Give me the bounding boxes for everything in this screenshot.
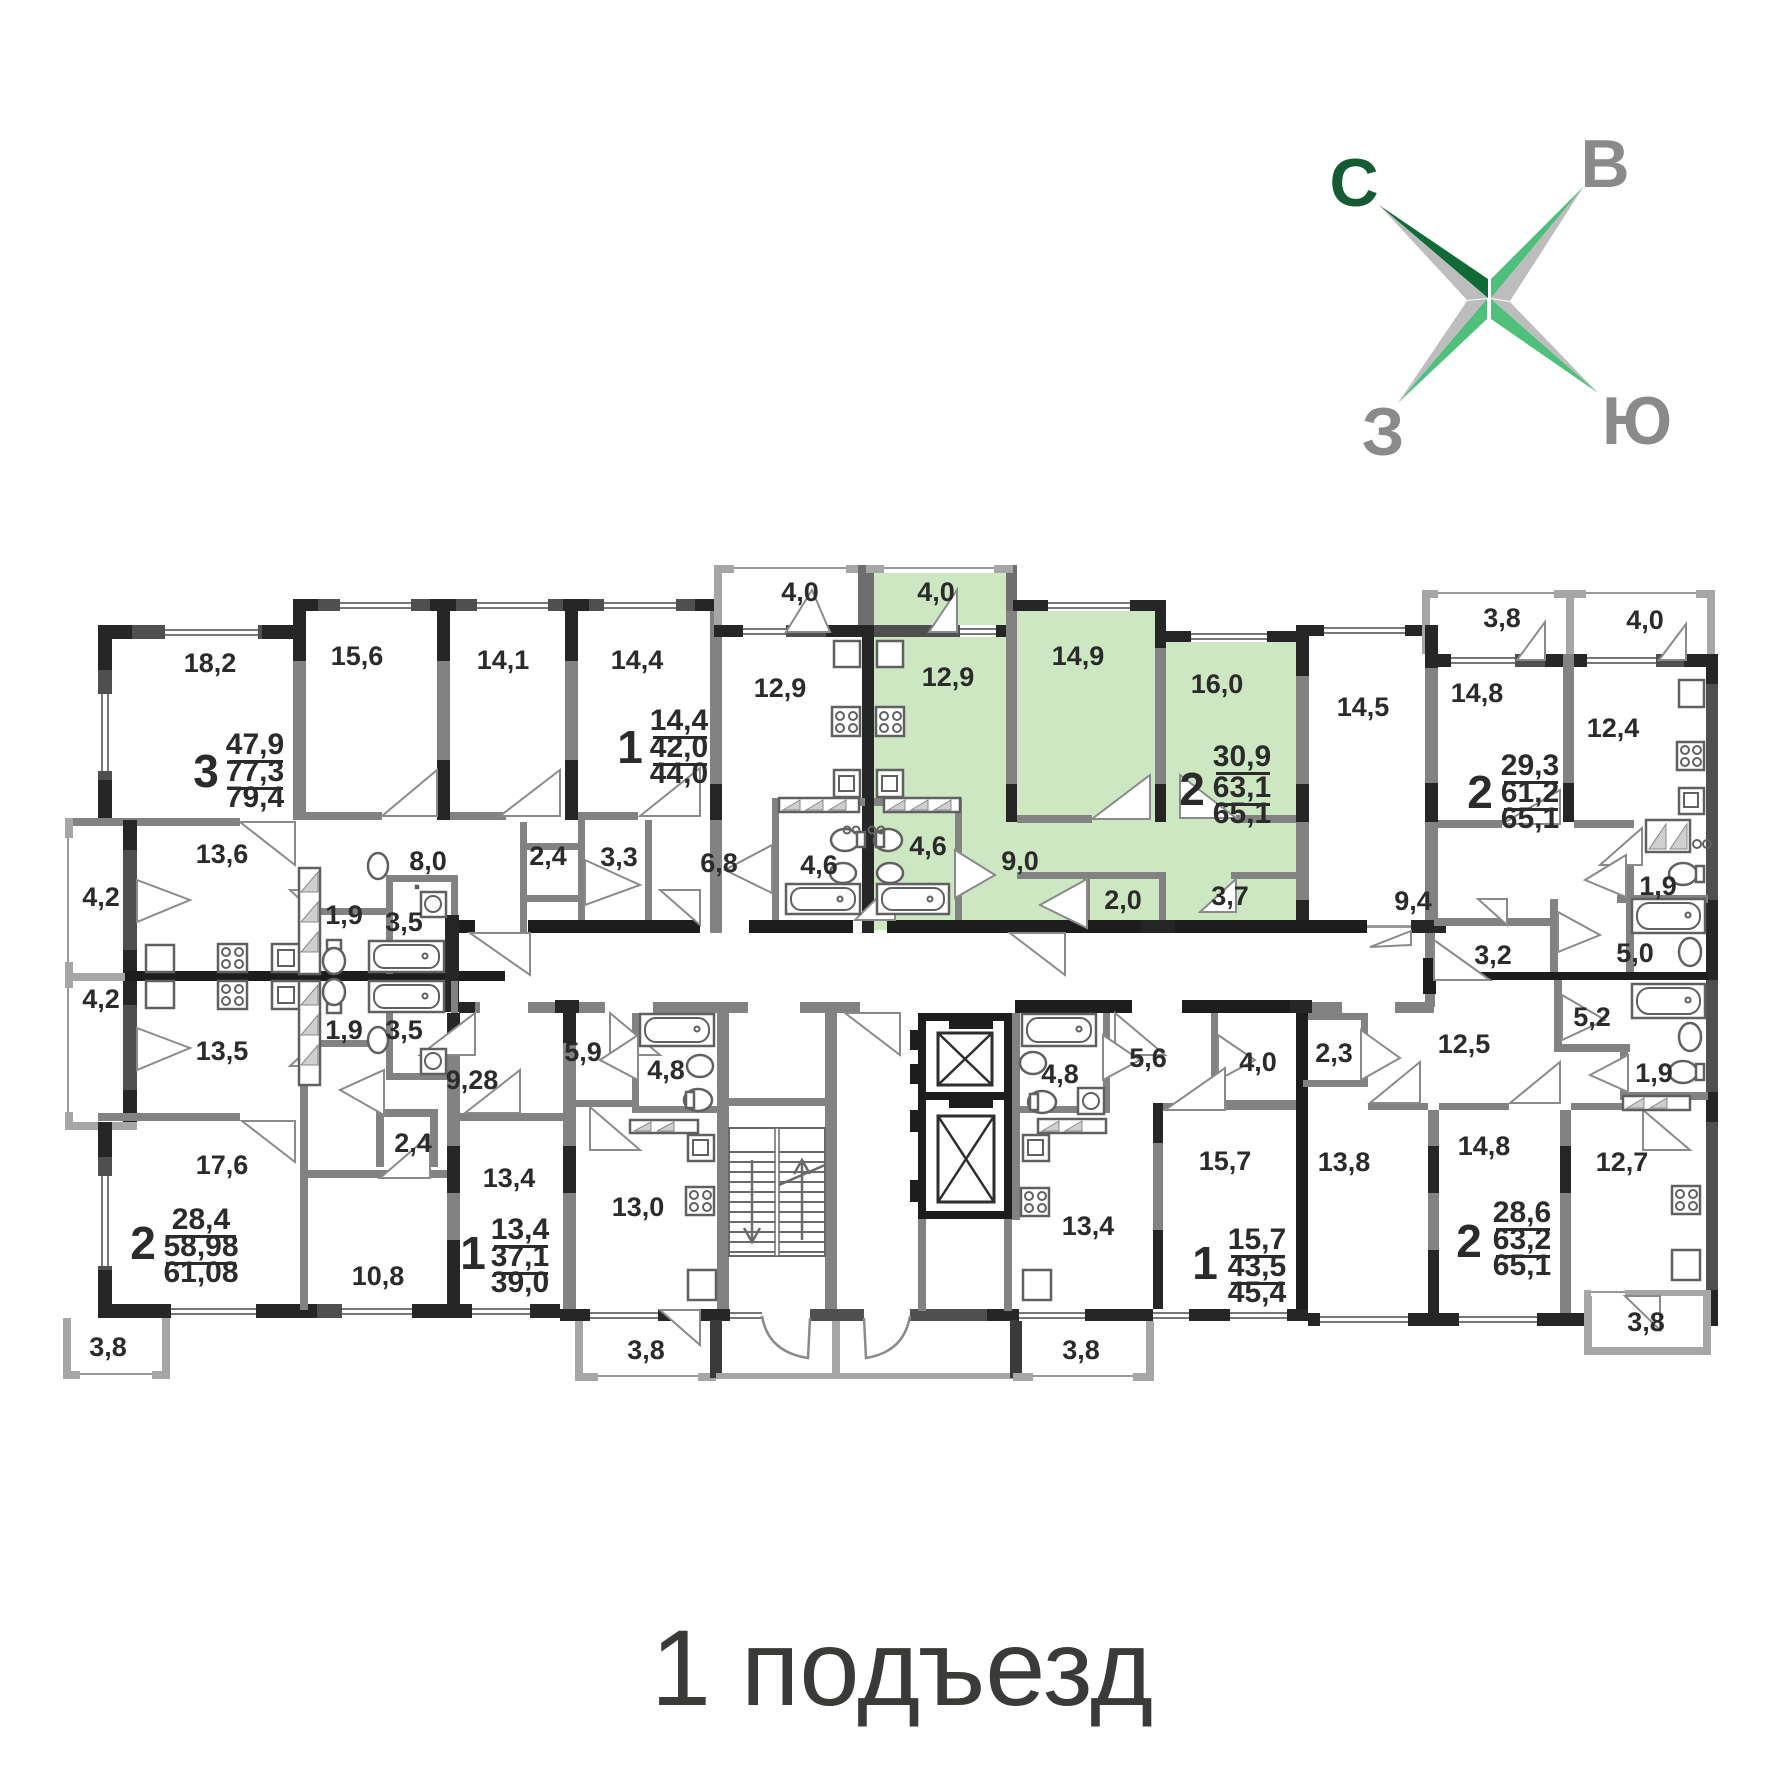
svg-text:6,8: 6,8 [700, 848, 738, 878]
svg-text:9,0: 9,0 [1001, 846, 1039, 876]
svg-text:12,5: 12,5 [1438, 1029, 1491, 1059]
svg-text:З: З [1362, 394, 1405, 470]
svg-text:3,3: 3,3 [600, 842, 638, 872]
svg-text:13,4: 13,4 [1062, 1211, 1115, 1241]
svg-text:1,9: 1,9 [325, 900, 363, 930]
svg-text:9,28: 9,28 [446, 1065, 499, 1095]
svg-text:1: 1 [1192, 1237, 1218, 1289]
svg-text:12,7: 12,7 [1596, 1147, 1649, 1177]
svg-text:12,9: 12,9 [922, 662, 975, 692]
svg-text:15,6: 15,6 [331, 641, 384, 671]
svg-text:3,7: 3,7 [1211, 881, 1249, 911]
svg-text:39,0: 39,0 [491, 1266, 549, 1299]
svg-text:65,1: 65,1 [1213, 797, 1271, 830]
svg-text:С: С [1329, 145, 1378, 221]
svg-text:13,8: 13,8 [1318, 1147, 1371, 1177]
svg-text:16,0: 16,0 [1191, 669, 1244, 699]
svg-text:45,4: 45,4 [1228, 1276, 1287, 1309]
svg-text:13,0: 13,0 [612, 1192, 665, 1222]
svg-text:3,8: 3,8 [1062, 1335, 1100, 1365]
svg-text:65,1: 65,1 [1493, 1249, 1551, 1282]
svg-text:4,2: 4,2 [82, 882, 120, 912]
svg-text:2: 2 [1179, 763, 1205, 815]
svg-text:Ю: Ю [1602, 383, 1672, 459]
svg-text:4,6: 4,6 [909, 831, 947, 861]
svg-text:18,2: 18,2 [184, 648, 237, 678]
svg-text:65,1: 65,1 [1501, 802, 1559, 835]
svg-text:44,0: 44,0 [650, 757, 708, 790]
svg-text:4,2: 4,2 [82, 984, 120, 1014]
svg-text:2: 2 [130, 1217, 156, 1269]
svg-text:17,6: 17,6 [196, 1150, 249, 1180]
svg-text:13,6: 13,6 [196, 839, 249, 869]
svg-text:2,4: 2,4 [394, 1128, 432, 1158]
svg-text:30,9: 30,9 [1213, 740, 1271, 773]
svg-text:14,5: 14,5 [1337, 692, 1390, 722]
svg-text:12,4: 12,4 [1587, 713, 1640, 743]
svg-text:3,2: 3,2 [1474, 940, 1512, 970]
svg-text:1,9: 1,9 [1635, 1058, 1673, 1088]
svg-text:1: 1 [617, 721, 643, 773]
svg-text:1,9: 1,9 [325, 1015, 363, 1045]
svg-text:1 подъезд: 1 подъезд [651, 1607, 1153, 1728]
svg-text:8,0: 8,0 [409, 846, 447, 876]
svg-text:3,5: 3,5 [385, 907, 423, 937]
svg-text:4,6: 4,6 [800, 850, 838, 880]
svg-text:4,0: 4,0 [1239, 1047, 1277, 1077]
svg-text:1: 1 [460, 1227, 486, 1279]
svg-text:13,4: 13,4 [483, 1163, 536, 1193]
svg-text:14,4: 14,4 [611, 645, 664, 675]
svg-text:13,5: 13,5 [196, 1036, 249, 1066]
svg-text:14,9: 14,9 [1052, 641, 1105, 671]
svg-text:4,0: 4,0 [917, 577, 955, 607]
svg-text:В: В [1580, 126, 1629, 202]
svg-text:4,0: 4,0 [781, 577, 819, 607]
svg-text:3,8: 3,8 [627, 1335, 665, 1365]
svg-text:3,8: 3,8 [1627, 1307, 1665, 1337]
svg-text:3: 3 [193, 745, 219, 797]
svg-text:3,8: 3,8 [89, 1332, 127, 1362]
svg-text:61,08: 61,08 [163, 1256, 238, 1289]
svg-text:2: 2 [1467, 766, 1493, 818]
svg-text:5,0: 5,0 [1616, 938, 1654, 968]
svg-text:2,4: 2,4 [529, 841, 567, 871]
svg-text:4,8: 4,8 [647, 1055, 685, 1085]
svg-text:3,8: 3,8 [1483, 603, 1521, 633]
svg-text:9,4: 9,4 [1394, 886, 1432, 916]
svg-text:2,3: 2,3 [1315, 1038, 1353, 1068]
svg-text:4,0: 4,0 [1626, 605, 1664, 635]
svg-text:1,9: 1,9 [1639, 871, 1677, 901]
svg-text:79,4: 79,4 [226, 781, 285, 814]
svg-text:14,1: 14,1 [477, 645, 530, 675]
svg-text:2,0: 2,0 [1104, 885, 1142, 915]
svg-text:12,9: 12,9 [754, 673, 807, 703]
svg-text:4,8: 4,8 [1041, 1059, 1079, 1089]
svg-text:5,9: 5,9 [564, 1037, 602, 1067]
svg-text:5,2: 5,2 [1573, 1002, 1611, 1032]
svg-text:2: 2 [1456, 1215, 1482, 1267]
svg-text:14,8: 14,8 [1458, 1131, 1511, 1161]
svg-text:14,8: 14,8 [1451, 678, 1504, 708]
svg-text:10,8: 10,8 [352, 1261, 405, 1291]
svg-text:15,7: 15,7 [1199, 1146, 1252, 1176]
svg-text:5,6: 5,6 [1129, 1043, 1167, 1073]
svg-text:3,5: 3,5 [385, 1015, 423, 1045]
